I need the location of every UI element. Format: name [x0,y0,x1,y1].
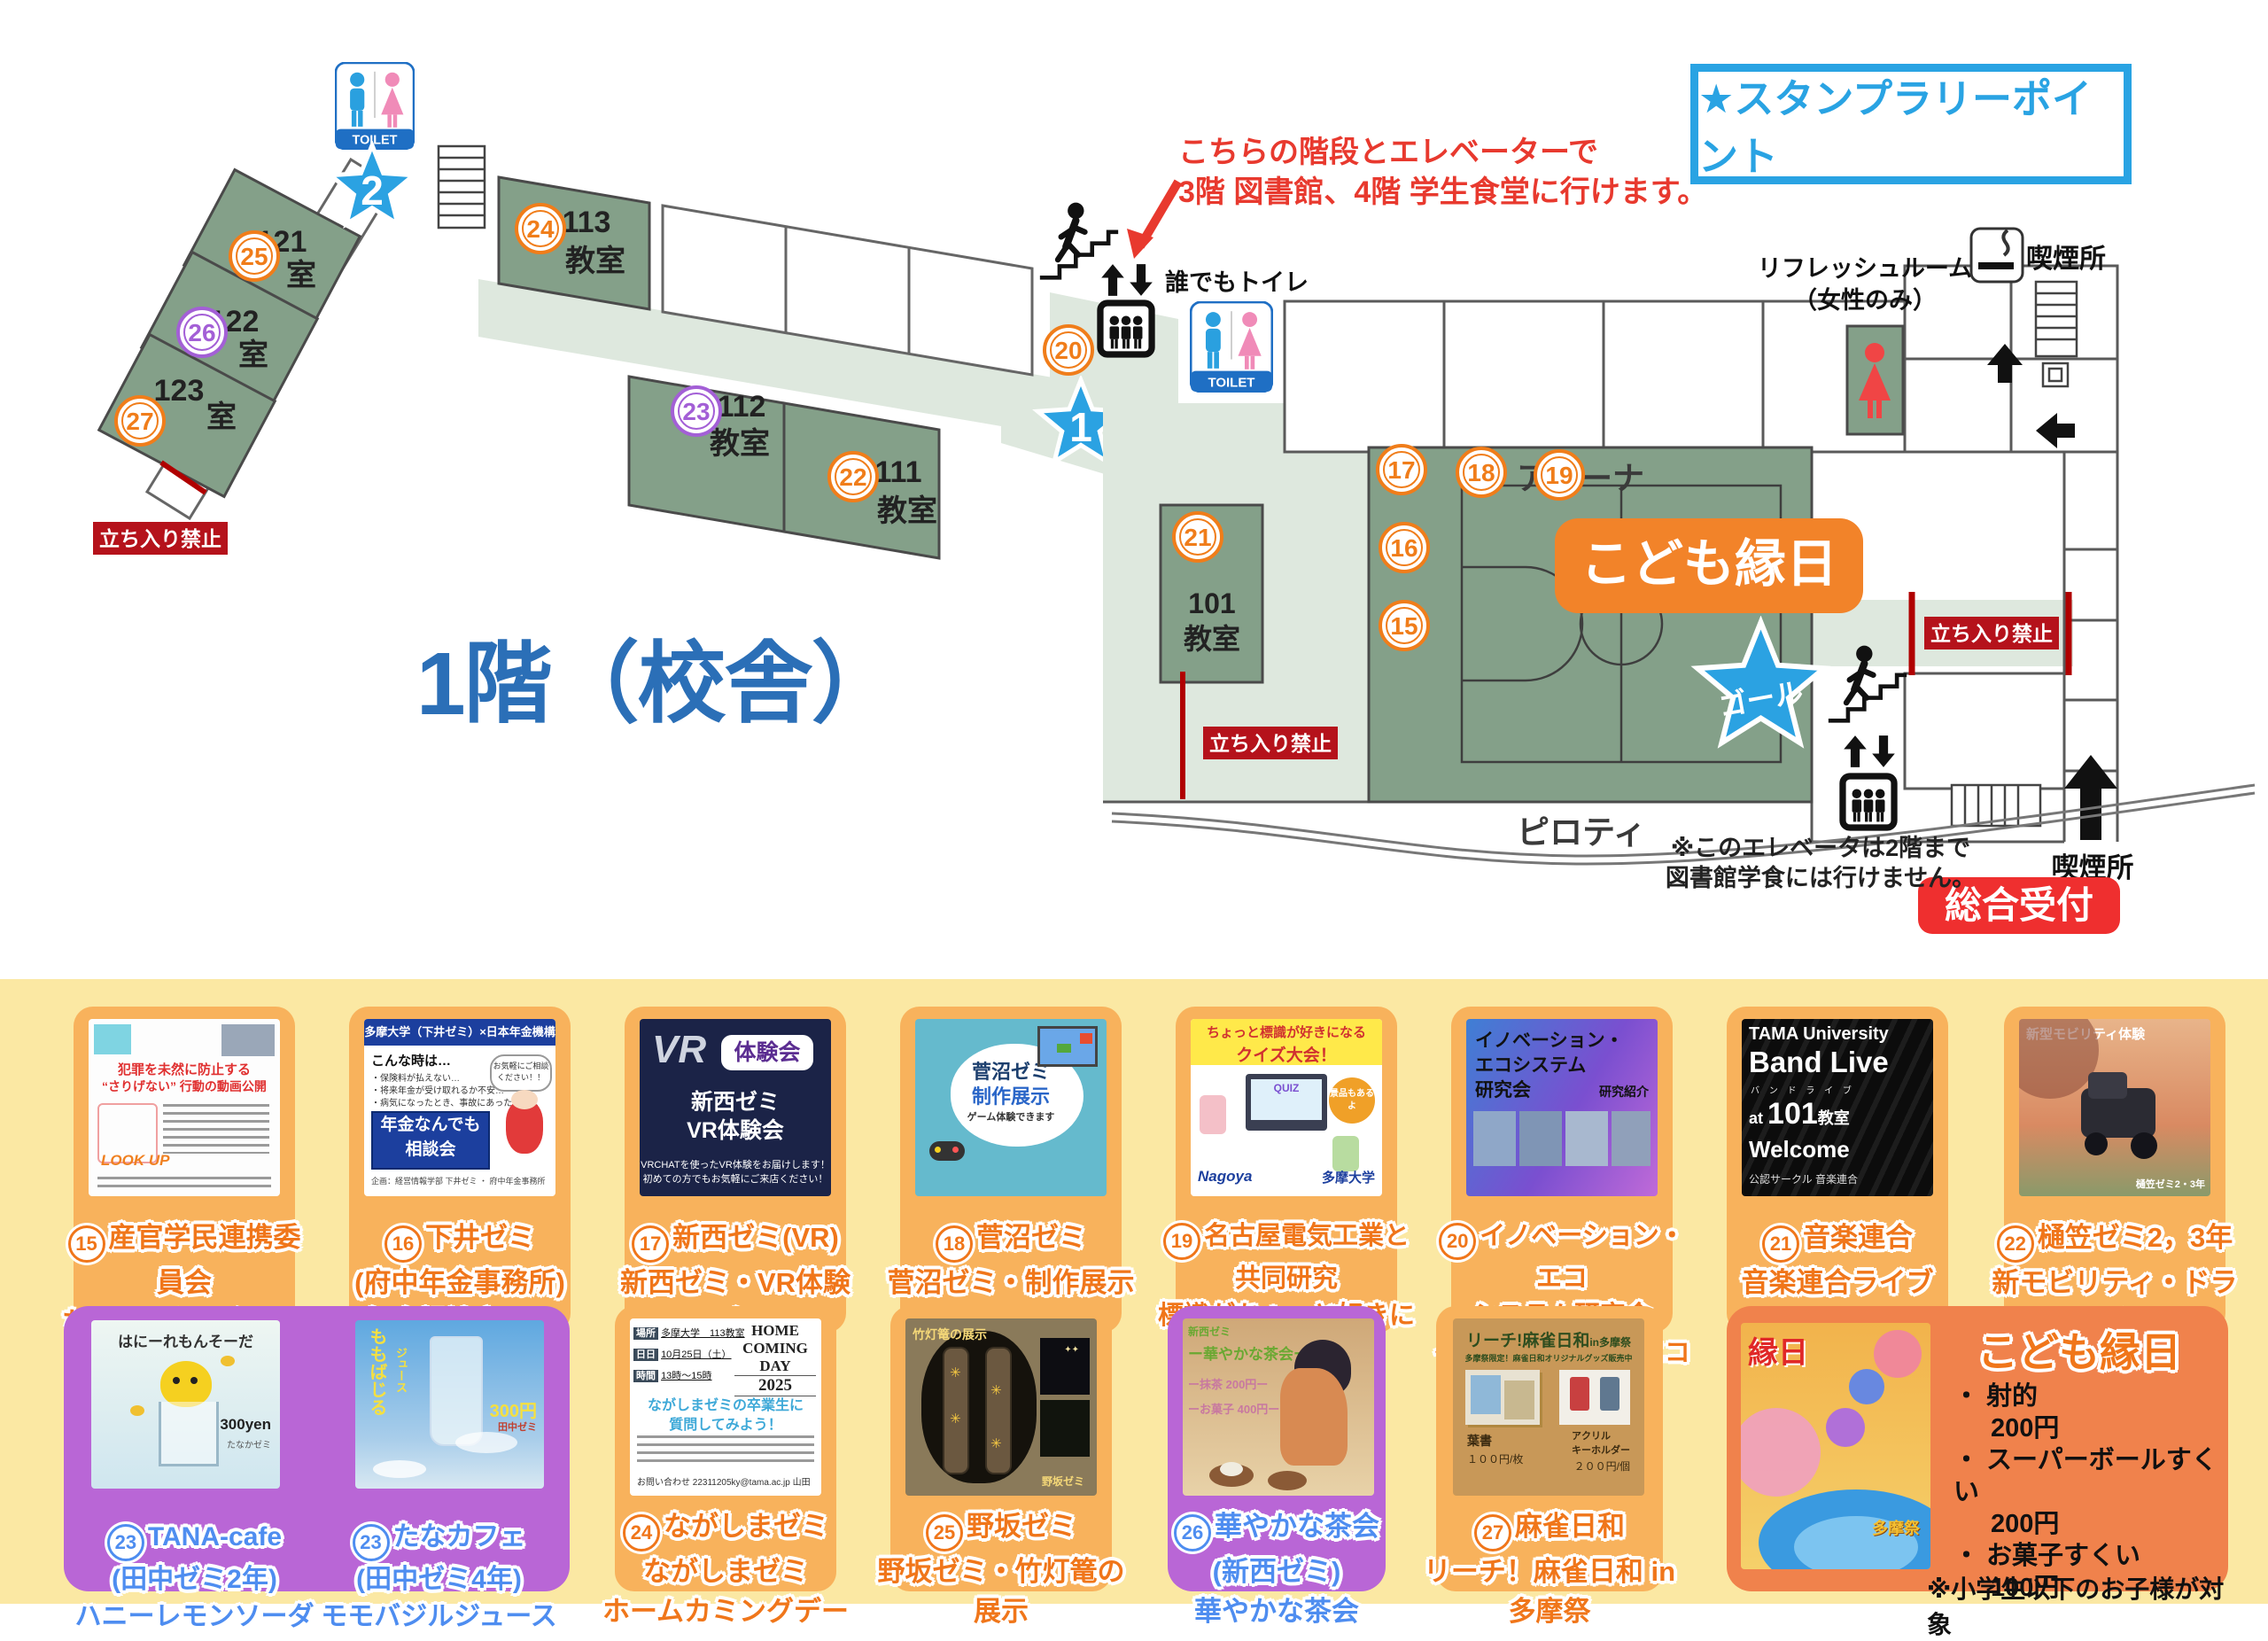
no-entry-badge-wing: 立ち入り禁止 [93,522,228,555]
svg-text:1: 1 [1069,404,1092,450]
card-22: 新型モビリティ体験 樋笠ゼミ2・3年 22樋笠ゼミ2，3年新モビリティ・ドライビ… [2004,1007,2225,1333]
room-101-label-1: 101 [1188,587,1235,619]
arena [1369,447,1812,802]
poster-kodomo: 縁日 多摩祭 [1741,1323,1930,1569]
poster-21: TAMA University Band Live バ ン ド ラ イ ブ at… [1742,1019,1933,1196]
toilet-sign-icon [336,63,414,149]
card-19: ちょっと標識が好きになる クイズ大会！ QUIZ 景品もあるよ Nagoya 多… [1176,1007,1397,1333]
map-note-line1: こちらの階段とエレベーターで [1178,135,1598,169]
svg-text:21: 21 [1184,524,1211,551]
refresh-label-1: リフレッシュルーム [1758,255,1972,282]
poster-24: HOME COMING DAY 2025 場所 多摩大学 113教室 日日 10… [630,1318,821,1496]
card-25: 竹灯篭の展示 ✳ ✳ ✳ ✳ ✦✦ 野坂ゼミ 25野坂ゼミ野坂ゼミ・竹灯篭の展示 [890,1306,1112,1591]
svg-text:19: 19 [1545,462,1573,489]
elevator-note-2: 図書館学食には行けません。 [1666,864,1976,891]
card-26: 新西ゼミ ー華やかな茶会ー ー抹茶 200円ー ーお菓子 400円ー 26華やか… [1168,1306,1386,1591]
card-24: HOME COMING DAY 2025 場所 多摩大学 113教室 日日 10… [615,1306,836,1591]
svg-text:立ち入り禁止: 立ち入り禁止 [99,527,221,550]
svg-text:2: 2 [361,167,384,214]
floor-title: 1階（校舎） [416,611,898,740]
card-16: 多摩大学（下井ゼミ）×日本年金機構 こんな時は… ・保険料が払えない… ・将来年… [349,1007,571,1333]
circle-21: 21 [1174,513,1222,561]
svg-text:24: 24 [526,215,555,243]
smoking-label-top: 喫煙所 [2026,245,2106,274]
elevator-icon [1100,303,1152,354]
poster-23b: ももばじる ジュース 300円 田中ゼミ [355,1320,544,1489]
no-entry-badge-right: 立ち入り禁止 [1924,617,2059,649]
card-20: イノベーション・ エコシステム 研究会 研究紹介 20イノベーション・エコシステ… [1451,1007,1673,1333]
stairs-hatch-top-left [439,146,485,228]
kodomo-note: ※小学生以下のお子様が対象 [1927,1570,2228,1641]
poster-16: 多摩大学（下井ゼミ）×日本年金機構 こんな時は… ・保険料が払えない… ・将来年… [364,1019,555,1196]
svg-text:25: 25 [240,243,268,270]
svg-text:立ち入り禁止: 立ち入り禁止 [1209,732,1332,755]
svg-text:室: 室 [206,400,237,434]
svg-text:17: 17 [1387,456,1415,484]
poster-18: 菅沼ゼミ 制作展示 ゲーム体験できます [915,1019,1107,1196]
svg-text:室: 室 [238,338,268,372]
map-note-line2: 3階 図書館、4階 学生食堂に行けます。 [1178,175,1707,209]
svg-text:113: 113 [563,206,611,239]
circle-20: 20 [1045,326,1092,374]
kodomo-ennichi-banner: こども縁日 [1555,518,1863,613]
stamp-rally-title: ★スタンプラリーポイント [1690,64,2132,184]
poster-27: リーチ!麻雀日和in多摩祭 多摩祭限定！麻雀日和オリジナルグッズ販売中 葉書 １… [1453,1318,1644,1496]
elevator-note-1: ※このエレベータは2階まで [1671,835,1970,861]
card-21: TAMA University Band Live バ ン ド ラ イ ブ at… [1727,1007,1948,1333]
card-23-double: はにーれもんそーだ 300yen たなかゼミ ももばじる ジュース 300円 田… [64,1306,570,1591]
card-17: VR 体験会 新西ゼミ VR体験会 VRCHATを使ったVR体験をお届けします！… [625,1007,846,1333]
refresh-label-2: （女性のみ） [1793,286,1937,314]
room-101-label-2: 教室 [1184,623,1240,655]
poster-23a: はにーれもんそーだ 300yen たなかゼミ [91,1320,280,1489]
pilotis-label: ピロティ [1517,814,1646,851]
event-cards-section: 犯罪を未然に防止する “さりげない” 行動の動画公開 LOOK UP 15産官学… [0,979,2268,1604]
card-15: 犯罪を未然に防止する “さりげない” 行動の動画公開 LOOK UP 15産官学… [74,1007,295,1333]
svg-text:こども縁日: こども縁日 [1581,535,1837,593]
svg-text:15: 15 [1390,612,1417,640]
svg-text:教室: 教室 [710,426,770,461]
svg-text:18: 18 [1467,459,1495,486]
svg-text:教室: 教室 [877,494,937,528]
svg-text:16: 16 [1390,534,1417,562]
poster-19: ちょっと標識が好きになる クイズ大会！ QUIZ 景品もあるよ Nagoya 多… [1191,1019,1382,1196]
svg-text:112: 112 [718,390,766,424]
svg-text:立ち入り禁止: 立ち入り禁止 [1930,622,2053,645]
svg-text:室: 室 [286,258,316,292]
poster-22: 新型モビリティ体験 樋笠ゼミ2・3年 [2019,1019,2210,1196]
card-kodomo-ennichi: 縁日 多摩祭 こども縁日 ・ 射的200円 ・ スーパーボールすくい200円 ・… [1727,1306,2228,1591]
poster-25: 竹灯篭の展示 ✳ ✳ ✳ ✳ ✦✦ 野坂ゼミ [905,1318,1097,1496]
svg-text:22: 22 [839,463,866,491]
poster-20: イノベーション・ エコシステム 研究会 研究紹介 [1466,1019,1658,1196]
poster-26: 新西ゼミ ー華やかな茶会ー ー抹茶 200円ー ーお菓子 400円ー [1183,1318,1374,1496]
no-entry-badge-101: 立ち入り禁止 [1203,727,1338,759]
svg-text:123: 123 [154,374,205,408]
poster-15: 犯罪を未然に防止する “さりげない” 行動の動画公開 LOOK UP [89,1019,280,1196]
elevator2-icon [1843,776,1894,828]
svg-text:27: 27 [126,408,153,435]
svg-text:教室: 教室 [565,244,625,278]
svg-text:111: 111 [875,455,922,489]
card-18: 菅沼ゼミ 制作展示 ゲーム体験できます 18菅沼ゼミ菅沼ゼミ・制作展示 [900,1007,1122,1333]
smoking-icon-top [1971,229,2023,282]
poster-17: VR 体験会 新西ゼミ VR体験会 VRCHATを使ったVR体験をお届けします！… [640,1019,831,1196]
svg-text:26: 26 [188,319,215,346]
svg-text:23: 23 [682,398,710,425]
anyone-toilet-sign-icon [1191,302,1272,392]
anyone-toilet-label: 誰でもトイレ [1165,268,1309,296]
svg-text:20: 20 [1054,337,1082,364]
card-27: リーチ!麻雀日和in多摩祭 多摩祭限定！麻雀日和オリジナルグッズ販売中 葉書 １… [1436,1306,1663,1591]
card-num: 15 [68,1225,105,1263]
kodomo-title: こども縁日 [1930,1320,2228,1379]
